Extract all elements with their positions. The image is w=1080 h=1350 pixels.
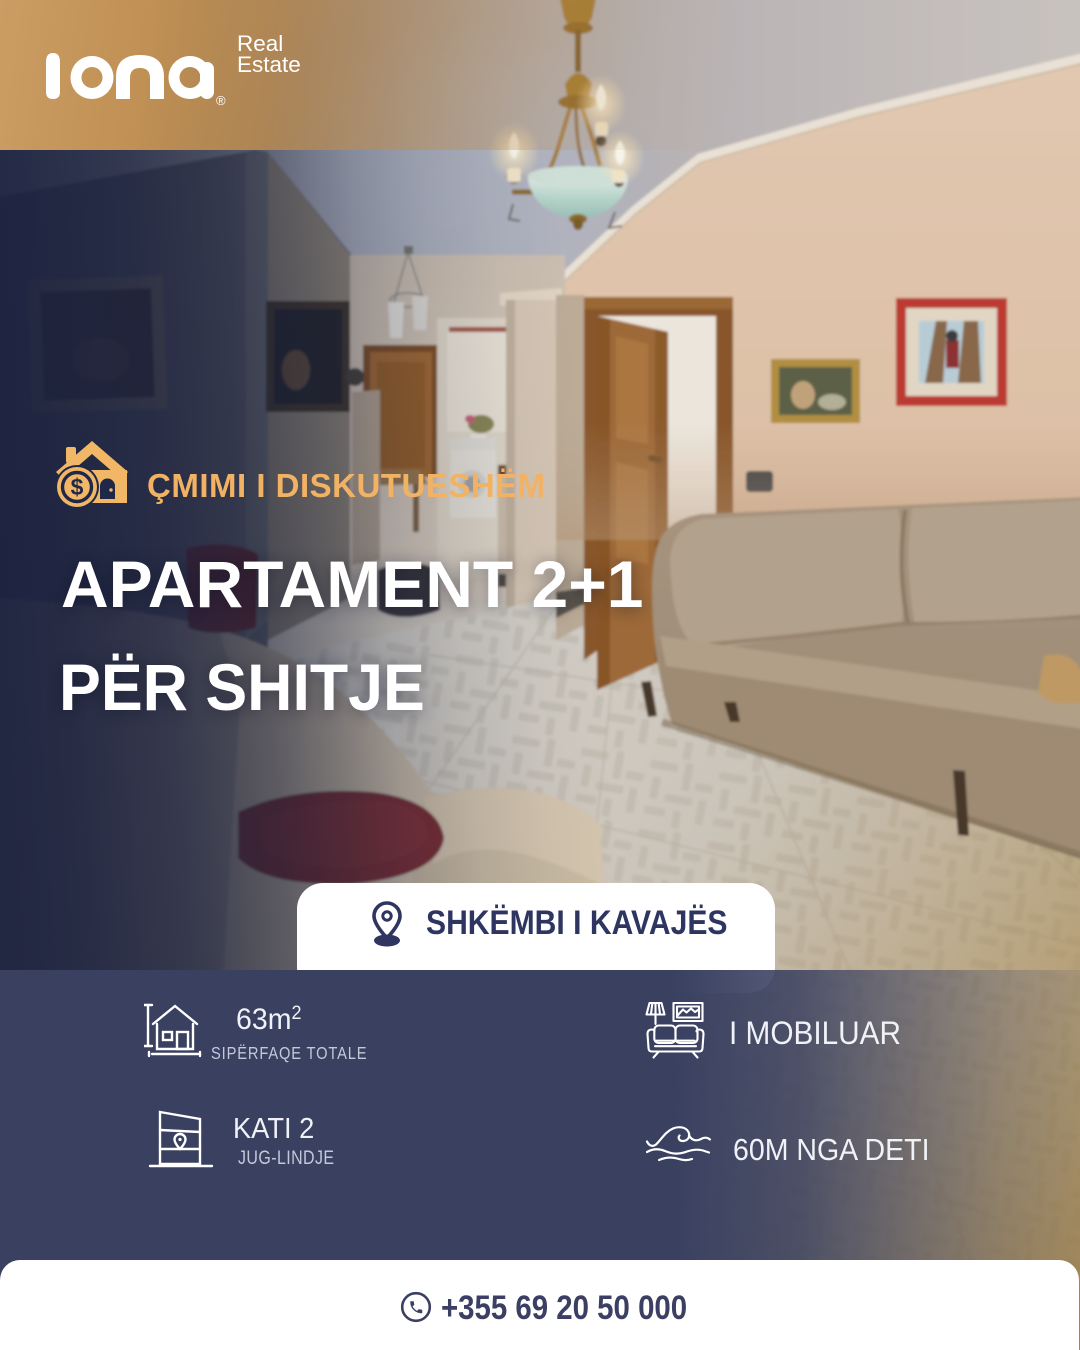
svg-text:Estate: Estate (237, 52, 301, 77)
svg-text:®: ® (216, 93, 226, 108)
svg-text:$: $ (71, 474, 84, 500)
